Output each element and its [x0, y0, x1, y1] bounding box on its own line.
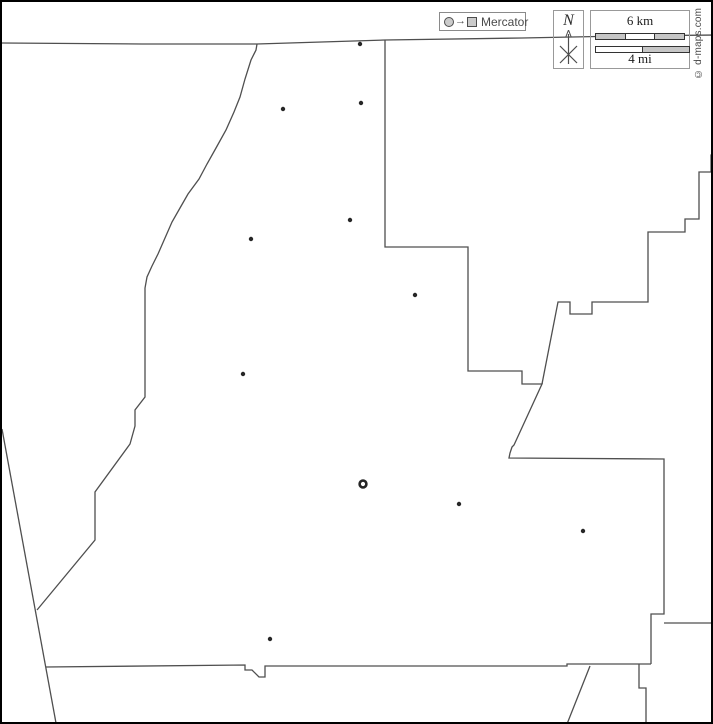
boundary-south-boundary: [46, 664, 651, 677]
scale-km-label: 6 km: [591, 14, 689, 27]
boundary-northeast-neighbor: [542, 155, 711, 384]
arrow-right-icon: →: [455, 16, 466, 27]
town-dot: [358, 42, 362, 46]
compass-rose-icon: [554, 30, 583, 68]
town-dot: [348, 218, 352, 222]
map-canvas: [2, 2, 711, 722]
compass-box: N: [553, 10, 584, 69]
scale-km-bar: [595, 33, 685, 40]
scale-bar-segment: [655, 34, 684, 39]
town-dot: [268, 637, 272, 641]
north-label: N: [554, 12, 583, 30]
town-dot: [249, 237, 253, 241]
boundary-south-diagonal: [567, 666, 590, 722]
scale-bar-segment: [596, 34, 626, 39]
boundary-west-boundary: [37, 44, 257, 610]
scale-box: 6 km 4 mi: [590, 10, 690, 69]
town-dot: [413, 293, 417, 297]
town-dot: [457, 502, 461, 506]
county-seat-marker: [360, 481, 367, 488]
copyright-text: © d-maps.com: [693, 9, 708, 79]
boundary-east-boundary: [385, 40, 664, 664]
map-page: → Mercator N 6 km 4 mi © d-maps.com: [0, 0, 713, 724]
town-dot: [359, 101, 363, 105]
boundary-west-diagonal: [2, 429, 56, 722]
projection-label: Mercator: [481, 15, 528, 29]
circle-symbol-icon: [444, 17, 454, 27]
projection-legend: → Mercator: [439, 12, 526, 31]
boundary-southeast-neighbor: [639, 664, 646, 722]
town-dot: [241, 372, 245, 376]
square-symbol-icon: [467, 17, 477, 27]
town-dot: [281, 107, 285, 111]
town-dot: [581, 529, 585, 533]
scale-bar-segment: [626, 34, 656, 39]
scale-mi-label: 4 mi: [591, 52, 689, 65]
